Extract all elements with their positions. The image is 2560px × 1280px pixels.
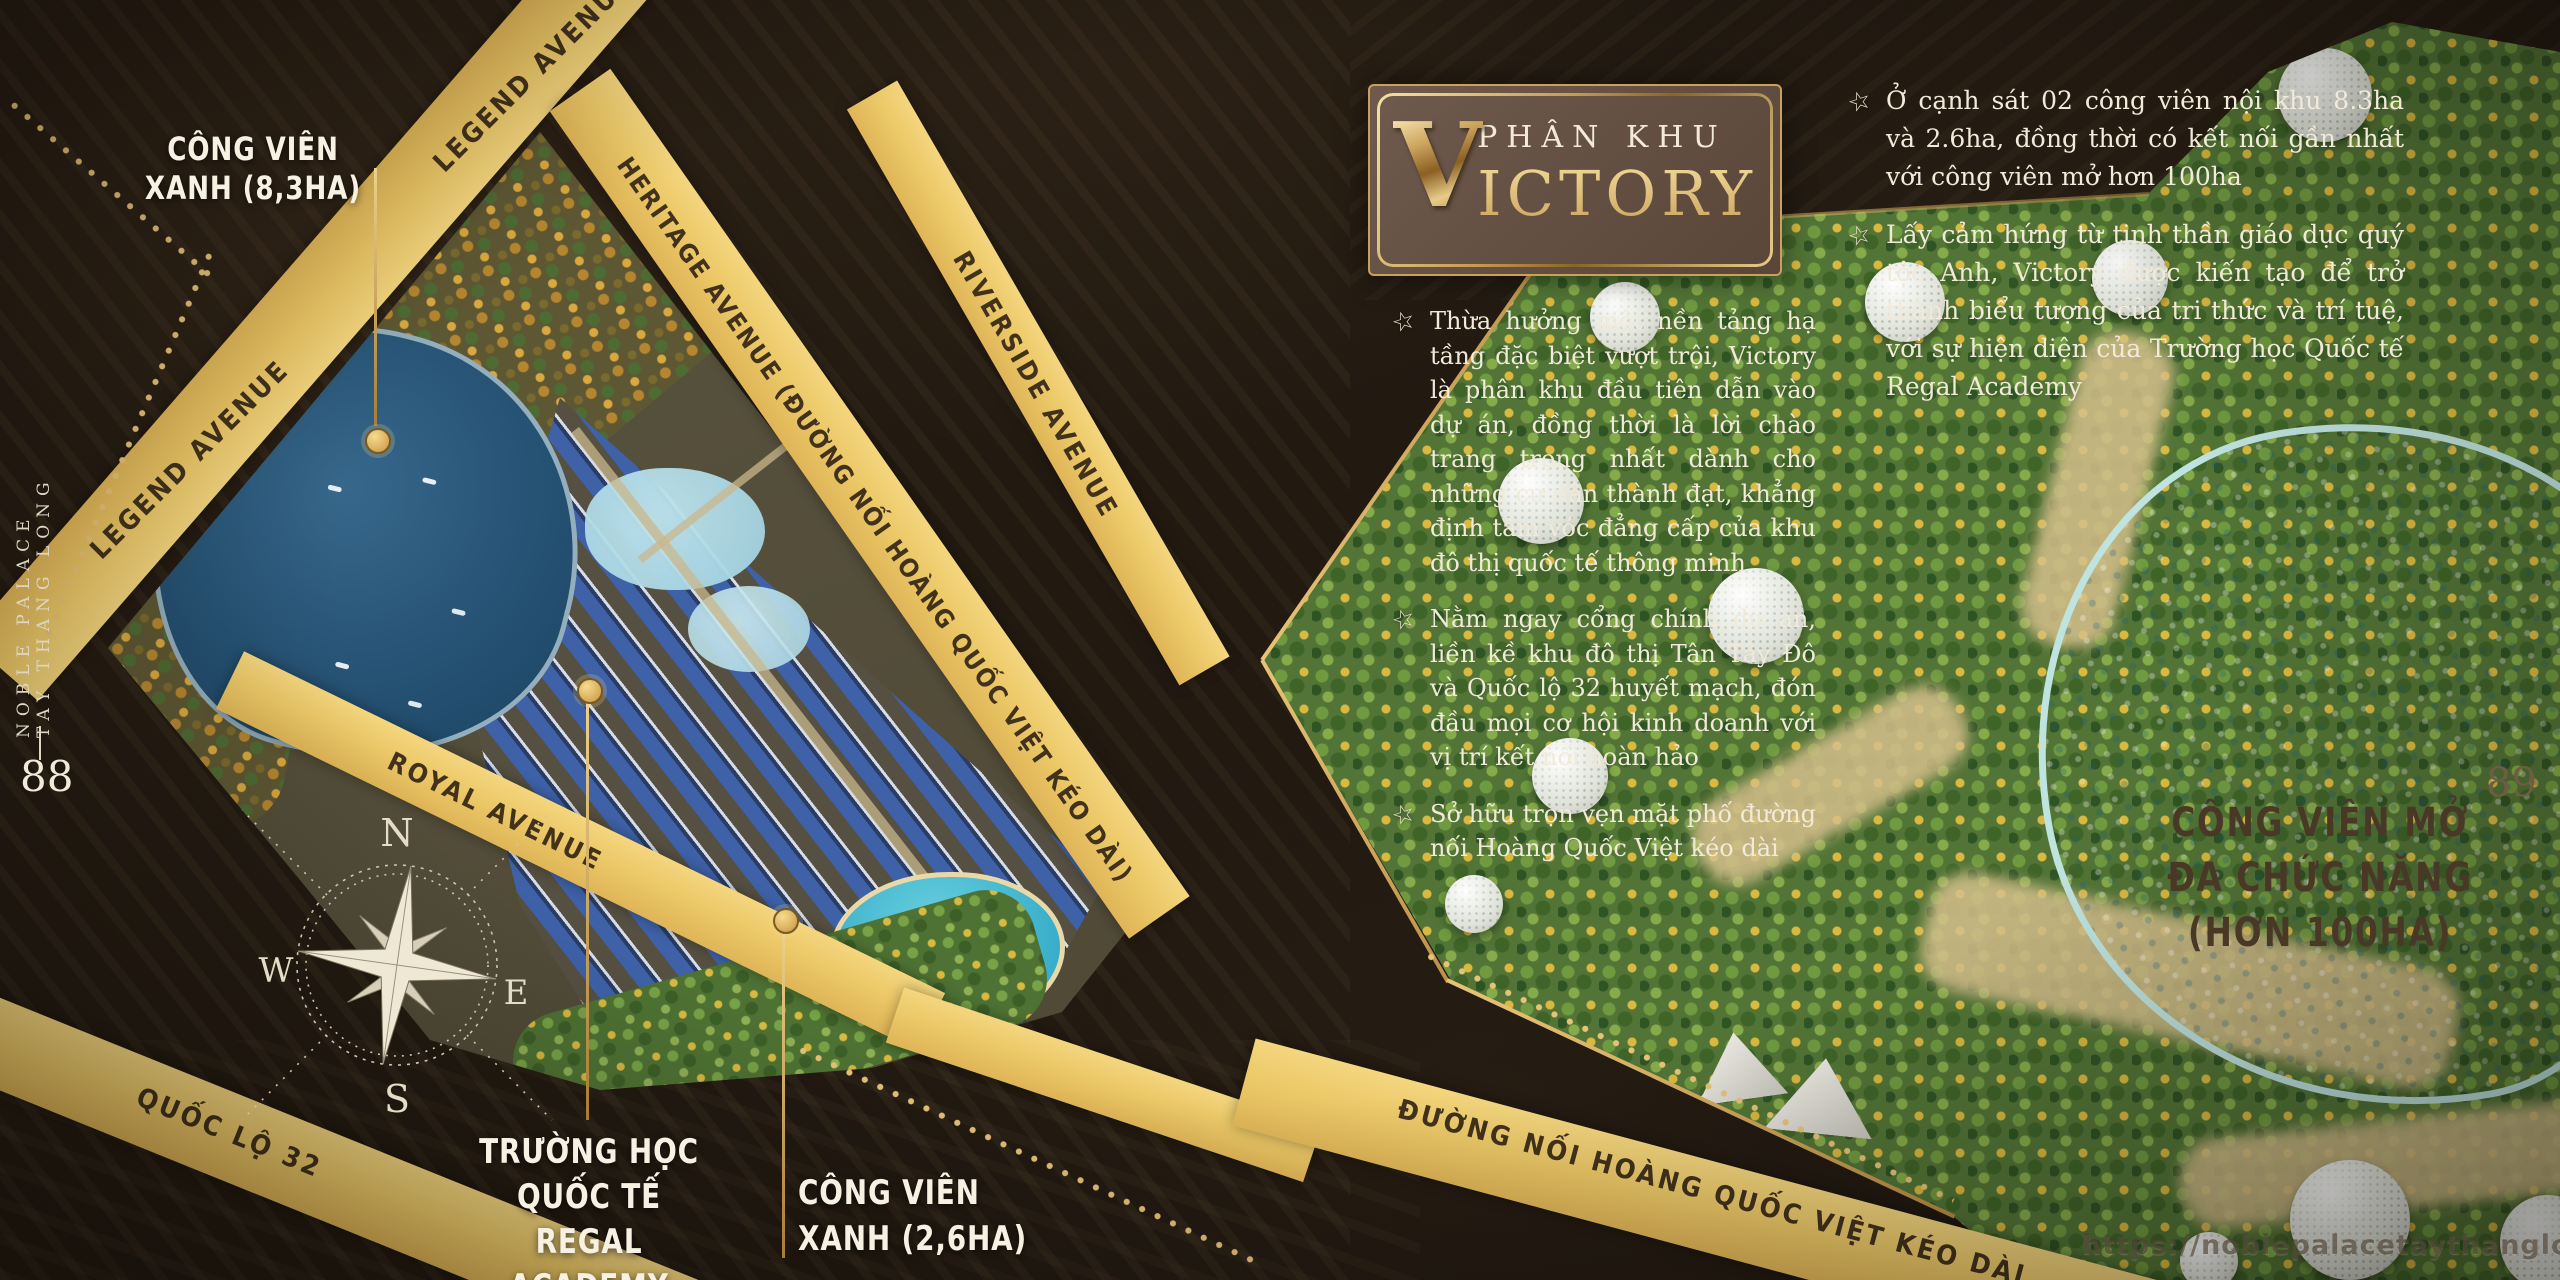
map-marker-school [577,678,603,704]
brochure-spread: LEGEND AVENUE LEGEND AVENUE HERITAGE AVE… [0,0,2560,1280]
bullet-text: Sở hữu trọn vẹn mặt phố đường nối Hoàng … [1430,800,1816,863]
page-number-right: 89 [2486,760,2537,806]
callout-line: XANH (8,3HA) [134,169,372,208]
compass-north: N [380,811,413,855]
feature-list-middle: ☆Thừa hưởng một nền tảng hạ tầng đặc biệ… [1392,304,1816,888]
star-bullet-icon: ☆ [1843,80,1877,123]
bullet-text: Thừa hưởng một nền tảng hạ tầng đặc biệt… [1430,307,1816,577]
tent-structure [1688,1026,1789,1106]
callout-line: CÔNG VIÊN [134,130,372,169]
open-park-label-line: CÔNG VIÊN MỞ [2148,796,2492,851]
dome-structure [2290,1160,2410,1280]
compass-south: S [384,1077,410,1121]
list-item: ☆Lấy cảm hứng từ tinh thần giáo dục quý … [1848,216,2404,406]
leader-line-school [586,702,589,1120]
bullet-text: Ở cạnh sát 02 công viên nội khu 8.3ha và… [1886,86,2404,191]
callout-line: REGAL ACADEMY [454,1220,725,1280]
callout-green-park-26: CÔNG VIÊN XANH (2,6HA) [798,1170,1128,1262]
star-bullet-icon: ☆ [1387,302,1420,342]
bullet-text: Lấy cảm hứng từ tinh thần giáo dục quý t… [1886,220,2404,401]
callout-line: CÔNG VIÊN [798,1170,1069,1216]
badge-kicker: PHÂN KHU [1477,120,1757,155]
spine-title: NOBLE PALACE TAY THANG LONG [14,468,54,738]
compass-east: E [504,973,529,1013]
list-item: ☆Sở hữu trọn vẹn mặt phố đường nối Hoàng… [1392,797,1816,866]
badge-title-rest: ICTORY [1477,157,1757,230]
victory-badge-content: V PHÂN KHU ICTORY [1370,86,1780,274]
bullet-text: Nằm ngay cổng chính dự án, liền kề khu đ… [1430,605,1816,771]
open-park-label-line: (HƠN 100HA) [2148,906,2492,961]
map-marker-park83 [365,428,391,454]
watermark-url: https://noblepalacetaythanglong.com.vn/ [2082,1230,2560,1261]
callout-line: TRƯỜNG HỌC [454,1130,725,1175]
list-item: ☆Ở cạnh sát 02 công viên nội khu 8.3ha v… [1848,82,2404,196]
star-bullet-icon: ☆ [1387,795,1420,835]
star-bullet-icon: ☆ [1387,600,1420,640]
victory-initial: V [1393,108,1483,224]
compass-west: W [259,951,294,991]
feature-list-right: ☆Ở cạnh sát 02 công viên nội khu 8.3ha v… [1848,82,2404,426]
road-label-riverside-avenue: RIVERSIDE AVENUE [946,246,1123,523]
star-bullet-icon: ☆ [1843,214,1877,257]
callout-green-park-83: CÔNG VIÊN XANH (8,3HA) [108,130,398,208]
callout-line: QUỐC TẾ [454,1175,725,1220]
map-marker-park26 [773,908,799,934]
compass-rose-icon: N E S W [232,800,562,1130]
callout-school: TRƯỜNG HỌC QUỐC TẾ REGAL ACADEMY [424,1130,754,1280]
open-park-label: CÔNG VIÊN MỞ ĐA CHỨC NĂNG (HƠN 100HA) [2110,796,2530,961]
victory-badge: V PHÂN KHU ICTORY [1368,84,1782,276]
tent-structure [1764,1053,1879,1140]
list-item: ☆Nằm ngay cổng chính dự án, liền kề khu … [1392,602,1816,775]
callout-line: XANH (2,6HA) [798,1216,1069,1262]
list-item: ☆Thừa hưởng một nền tảng hạ tầng đặc biệ… [1392,304,1816,580]
open-park-label-line: ĐA CHỨC NĂNG [2148,851,2492,906]
page-number-left: 88 [20,752,73,801]
leader-line-park26 [782,932,785,1258]
